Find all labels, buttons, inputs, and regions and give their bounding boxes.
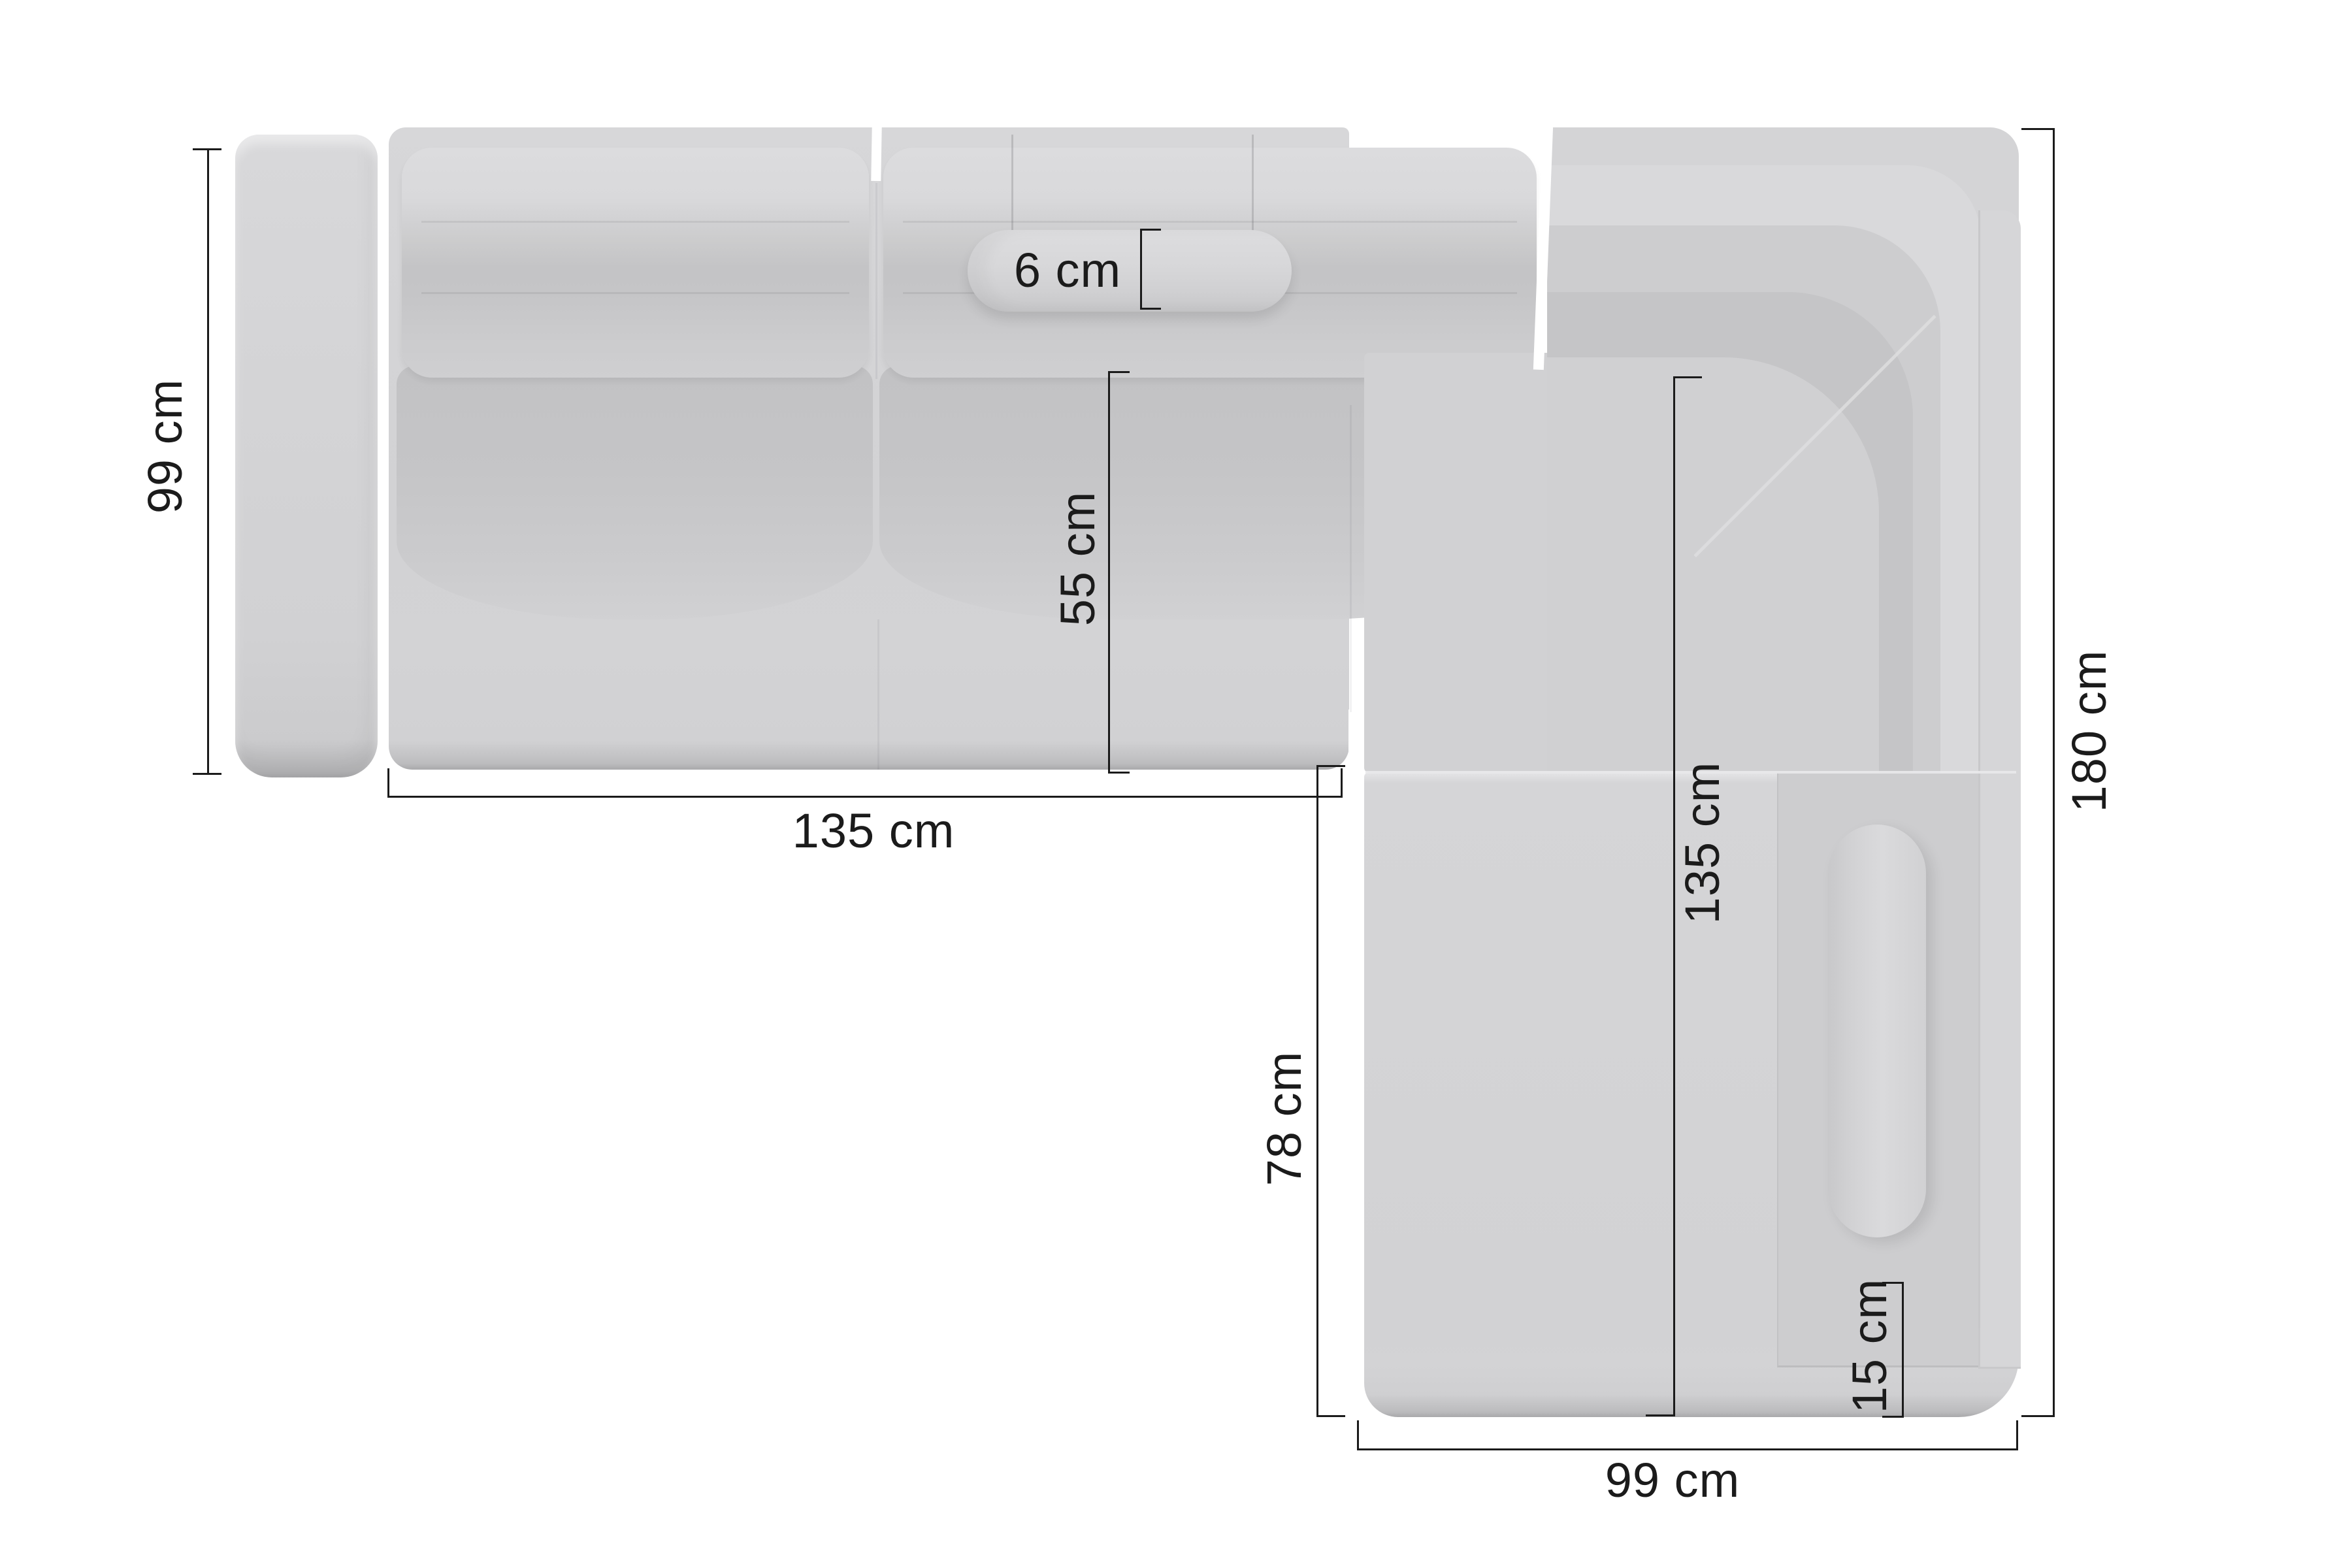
dim-line-bottom-99 bbox=[1357, 1448, 2018, 1450]
dim-tick bbox=[1108, 772, 1130, 774]
dim-tick bbox=[193, 773, 221, 775]
section-crease bbox=[1350, 405, 1352, 712]
dim-tick bbox=[1108, 371, 1130, 373]
dim-tick bbox=[2016, 1420, 2018, 1450]
dim-label-trim-15: 15 cm bbox=[1846, 1279, 1894, 1414]
dim-tick bbox=[1646, 1414, 1674, 1416]
dim-tick bbox=[1316, 765, 1345, 767]
section-gap bbox=[1348, 710, 1364, 773]
dim-label-depth-55: 55 cm bbox=[1054, 491, 1102, 627]
dim-line-depth-55 bbox=[1108, 371, 1110, 774]
dim-label-outer-180: 180 cm bbox=[2065, 650, 2114, 813]
dim-label-right-135: 135 cm bbox=[1678, 762, 1727, 924]
dim-tick bbox=[2021, 1415, 2055, 1417]
dim-tick bbox=[193, 148, 221, 150]
dim-label-pillow-6: 6 cm bbox=[1014, 246, 1121, 295]
dim-line-trim-15 bbox=[1902, 1282, 1904, 1418]
bolster-pillow-vertical bbox=[1828, 825, 1926, 1237]
section-crease bbox=[875, 183, 877, 379]
dim-label-front-78: 78 cm bbox=[1260, 1051, 1309, 1186]
backrest-shadow-left bbox=[397, 366, 873, 619]
dim-line-pillow-6 bbox=[1140, 229, 1142, 310]
cushion-seam bbox=[903, 221, 1517, 223]
dim-tick bbox=[387, 768, 389, 798]
dim-label-left-99: 99 cm bbox=[141, 379, 189, 514]
section-gap bbox=[871, 126, 881, 181]
sofa-dimension-diagram: 99 cm 135 cm 6 cm 55 cm 135 cm 78 cm 15 … bbox=[0, 0, 2352, 1568]
dim-tick bbox=[1673, 376, 1702, 378]
dim-line-front-78 bbox=[1316, 765, 1318, 1417]
dim-tick bbox=[1882, 1416, 1904, 1418]
dim-label-bottom-99: 99 cm bbox=[1605, 1456, 1740, 1505]
dim-tick bbox=[1357, 1420, 1359, 1450]
dim-label-bottom-135: 135 cm bbox=[792, 807, 955, 855]
dim-tick bbox=[1140, 229, 1161, 231]
dim-line-outer-180 bbox=[2053, 128, 2055, 1417]
dim-line-bottom-135 bbox=[387, 796, 1343, 798]
cushion-seam bbox=[421, 292, 849, 294]
dim-tick bbox=[1316, 1415, 1345, 1417]
dim-tick bbox=[1140, 308, 1161, 310]
dim-line-left-99 bbox=[207, 148, 209, 775]
right-outer-panel bbox=[1978, 210, 2021, 1369]
dim-tick bbox=[1341, 768, 1343, 798]
seat-crease bbox=[877, 619, 879, 770]
sofa-left-armrest bbox=[235, 135, 378, 777]
cushion-seam bbox=[421, 221, 849, 223]
backrest-cushion-left bbox=[402, 148, 869, 378]
dim-tick bbox=[2021, 128, 2055, 130]
sofa-corner-backrest bbox=[1547, 127, 2019, 773]
